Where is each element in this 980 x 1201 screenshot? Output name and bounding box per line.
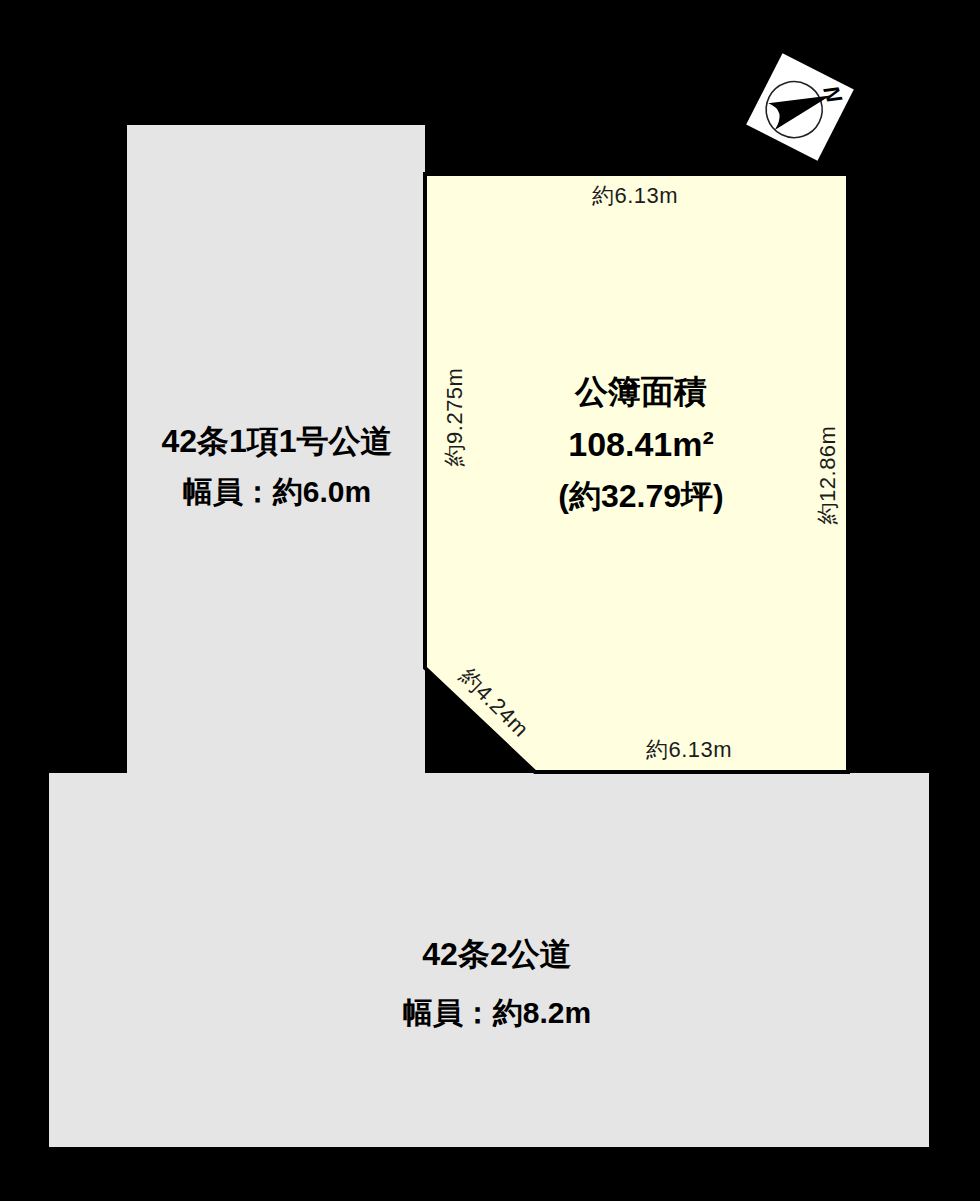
dim-bottom: 約6.13m xyxy=(646,735,732,765)
road-left-label: 42条1項1号公道 幅員：約6.0m xyxy=(161,424,392,508)
area-value: 108.41m² xyxy=(558,418,723,470)
road-left-name: 42条1項1号公道 xyxy=(161,424,392,458)
road-bottom-label: 42条2公道 幅員：約8.2m xyxy=(403,937,591,1029)
land-plot-diagram: 約6.13m 約9.275m 約12.86m 約4.24m 約6.13m 公簿面… xyxy=(0,0,980,1201)
compass-n-label: N xyxy=(818,83,847,107)
dim-right: 約12.86m xyxy=(813,426,843,525)
road-left-width: 幅員：約6.0m xyxy=(161,476,392,508)
dim-left: 約9.275m xyxy=(440,368,470,467)
road-bottom-name: 42条2公道 xyxy=(403,937,591,971)
road-bottom-width: 幅員：約8.2m xyxy=(403,997,591,1029)
area-title: 公簿面積 xyxy=(558,366,723,418)
dim-top: 約6.13m xyxy=(592,181,678,211)
area-tsubo: (約32.79坪) xyxy=(558,470,723,522)
parcel-area-block: 公簿面積 108.41m² (約32.79坪) xyxy=(558,366,723,522)
north-needle-icon xyxy=(759,72,831,146)
